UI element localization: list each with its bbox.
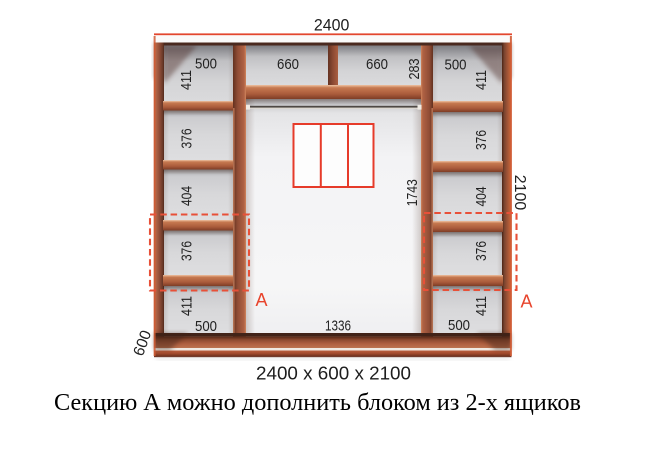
svg-text:376: 376 [473,241,490,261]
svg-text:1336: 1336 [325,318,351,335]
svg-text:A: A [255,290,267,310]
svg-text:411: 411 [473,70,490,90]
svg-text:500: 500 [448,317,470,334]
svg-text:411: 411 [473,296,490,316]
svg-text:404: 404 [178,186,195,206]
svg-text:A: A [520,292,532,312]
svg-text:660: 660 [366,56,388,73]
svg-text:411: 411 [178,70,195,90]
svg-text:411: 411 [178,296,195,316]
svg-text:376: 376 [178,241,195,261]
svg-text:2400: 2400 [314,17,350,35]
svg-text:500: 500 [445,57,467,74]
svg-text:404: 404 [473,187,490,207]
svg-text:283: 283 [406,59,423,80]
svg-text:376: 376 [178,129,195,149]
svg-text:1743: 1743 [404,179,421,206]
svg-text:600: 600 [130,328,155,358]
svg-text:Секцию А можно дополнить блоко: Секцию А можно дополнить блоком из 2-х я… [54,390,581,416]
svg-text:376: 376 [473,130,490,150]
svg-text:2400 x 600 x 2100: 2400 x 600 x 2100 [256,364,411,384]
svg-text:500: 500 [195,318,217,335]
svg-text:2100: 2100 [511,175,528,211]
svg-text:500: 500 [195,56,217,73]
svg-text:660: 660 [277,56,299,73]
